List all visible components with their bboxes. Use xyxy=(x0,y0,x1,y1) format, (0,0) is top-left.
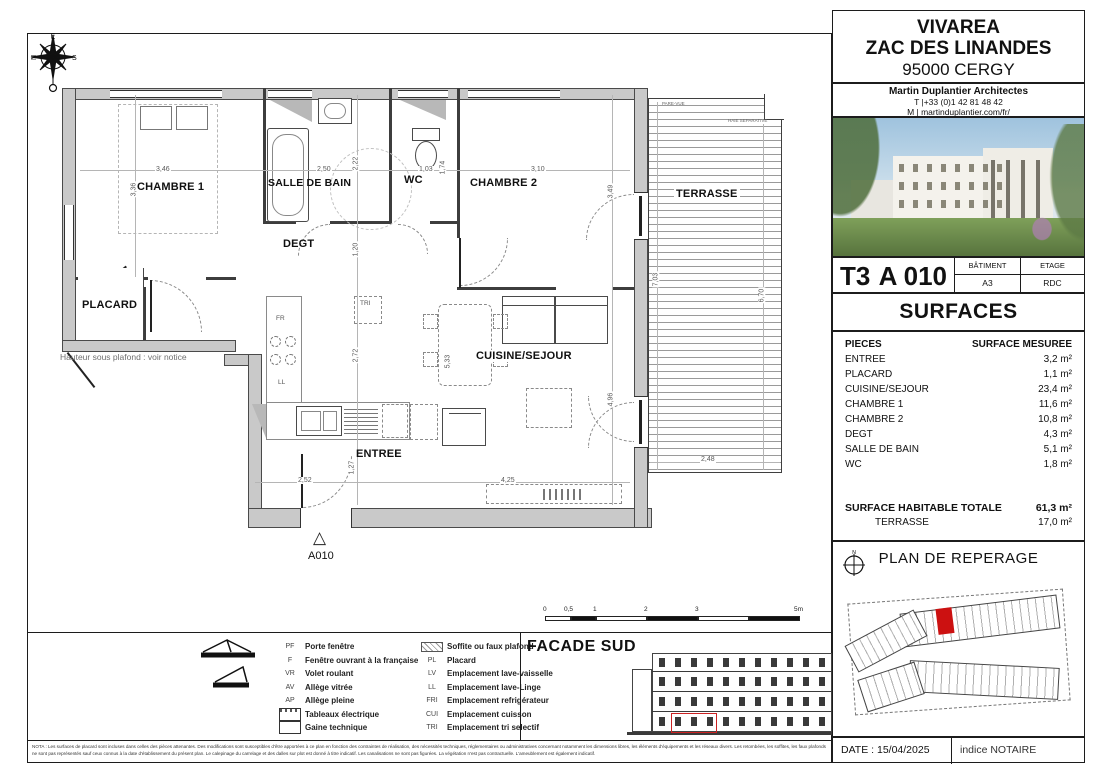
partition-wc-degt xyxy=(430,221,458,224)
room-terrasse: TERRASSE xyxy=(674,188,740,200)
dim-entree-h: 1,27 xyxy=(348,460,355,476)
dim-sdb-h: 2,22 xyxy=(352,156,359,172)
partition-chambre2-sejour-b xyxy=(612,287,634,290)
dim-terrasse-w: 2,48 xyxy=(700,456,716,463)
dim-wc-h: 1,74 xyxy=(439,160,446,176)
architect-box: Martin Duplantier Architectes T |+33 (0)… xyxy=(832,83,1085,117)
floor-plan: PARE-VUE HAIE SEPARATIVE xyxy=(0,0,832,632)
coffee-table xyxy=(526,388,572,428)
unit-row: T3 A 010 BÂTIMENT ETAGE A3 RDC xyxy=(832,257,1085,293)
unit-id-cell: T3 A 010 xyxy=(833,258,955,294)
legend-divider xyxy=(520,633,521,741)
dim-sdb-w: 2,50 xyxy=(316,166,332,173)
room-degt: DEGT xyxy=(283,238,314,250)
sink-drainer xyxy=(344,406,378,436)
technical-duct-icon xyxy=(279,721,301,734)
surfaces-table: PIECESSURFACE MESUREE ENTREE3,2 m² PLACA… xyxy=(832,331,1085,541)
floorplan-sheet: { "colors": {"accent_red": "#cc1111", "w… xyxy=(0,0,1094,770)
table-row: CUISINE/SEJOUR23,4 m² xyxy=(833,382,1084,397)
dim-table-h: 5,33 xyxy=(444,354,451,370)
window-sill-wc xyxy=(400,100,446,120)
building-photo xyxy=(832,117,1085,257)
dining-chair-2 xyxy=(423,352,438,367)
project-name: VIVAREA xyxy=(833,18,1084,39)
window-sill-sdb xyxy=(270,100,312,122)
legend-label: Gaine technique xyxy=(305,723,367,732)
legend-label: Emplacement refrigérateur xyxy=(447,696,549,705)
tri-box: TRI xyxy=(354,296,382,324)
reperage-box: N PLAN DE REPERAGE xyxy=(832,541,1085,737)
terrasse-decking xyxy=(648,98,782,473)
entree-door-opening xyxy=(300,508,352,528)
window-wc xyxy=(398,90,448,98)
window-left-wall xyxy=(64,205,74,260)
legend-label: Allège pleine xyxy=(305,696,354,705)
window-symbol-icon xyxy=(199,637,257,699)
dim-sejour-door-h: 4,96 xyxy=(607,392,614,408)
wall-placard-bottom xyxy=(62,340,236,352)
legend-label: Emplacement cuisson xyxy=(447,710,531,719)
dim-sejour-w: 4,25 xyxy=(500,477,516,484)
partition-wc-chambre2 xyxy=(457,88,460,238)
room-cuisine: CUISINE/SEJOUR xyxy=(476,350,572,362)
chambre2-terrasse-arc xyxy=(586,194,634,240)
room-sdb: SALLE DE BAIN xyxy=(268,177,351,189)
facade-title: FACADE SUD xyxy=(527,638,636,656)
bed-pillow-1 xyxy=(140,106,172,130)
legend-label: Porte fenêtre xyxy=(305,642,354,651)
table-row: WC1,8 m² xyxy=(833,457,1084,472)
dim-degt-h: 1,20 xyxy=(352,242,359,258)
window-sdb xyxy=(268,90,312,98)
indice-value: indice NOTAIRE xyxy=(952,738,1092,764)
legend-label: Volet roulant xyxy=(305,669,353,678)
chambre1-door-leaf xyxy=(150,280,152,332)
room-chambre2: CHAMBRE 2 xyxy=(470,177,537,189)
room-placard: PLACARD xyxy=(82,299,137,311)
nota-text: NOTA : Les surfaces de placard sont incl… xyxy=(27,741,832,760)
table-row: CHAMBRE 111,6 m² xyxy=(833,397,1084,412)
ceiling-note: Hauteur sous plafond : voir notice xyxy=(60,352,187,362)
radiator xyxy=(486,484,622,504)
architect-website[interactable]: M | martinduplantier.com/fr/ xyxy=(833,107,1084,117)
surfaces-title: SURFACES xyxy=(899,300,1017,324)
project-location: ZAC DES LINANDES xyxy=(833,39,1084,60)
wall-right xyxy=(634,88,648,528)
legend-label: Emplacement tri selectif xyxy=(447,723,539,732)
reperage-title: PLAN DE REPERAGE xyxy=(833,550,1084,567)
unit-number: A 010 xyxy=(879,261,947,292)
toilet-tank xyxy=(412,128,440,141)
site-plan xyxy=(839,578,1079,730)
table-row: SALLE DE BAIN5,1 m² xyxy=(833,442,1084,457)
partition-chambre1-sdb xyxy=(263,88,266,224)
etage-value: RDC xyxy=(1021,275,1084,294)
project-title-box: VIVAREA ZAC DES LINANDES 95000 CERGY xyxy=(832,10,1085,83)
wc-door-arc xyxy=(398,224,428,254)
bed-pillow-2 xyxy=(176,106,208,130)
architect-name: Martin Duplantier Architectes xyxy=(833,86,1084,97)
wall-kitchen-left xyxy=(248,354,262,512)
partition-chambre2-sejour-a xyxy=(457,287,556,290)
dim-wc-w: 1,03 xyxy=(418,166,434,173)
dim-cuisine-h: 2,72 xyxy=(352,348,359,364)
legend-label: Fenêtre ouvrant à la française xyxy=(305,656,418,665)
window-chambre1 xyxy=(110,90,222,98)
north-icon: N xyxy=(843,548,865,576)
surfaces-title-box: SURFACES xyxy=(832,293,1085,331)
sofa xyxy=(502,296,608,344)
legend-label: Tableaux électrique xyxy=(305,710,379,719)
room-chambre1: CHAMBRE 1 xyxy=(137,181,204,193)
table-row: ENTREE3,2 m² xyxy=(833,352,1084,367)
dim-chambre2-h: 3,49 xyxy=(607,184,614,200)
unit-type: T3 xyxy=(840,261,870,292)
dishwasher-box xyxy=(382,404,408,438)
date-row: DATE : 15/04/2025 indice NOTAIRE xyxy=(832,737,1085,763)
chambre2-door-leaf xyxy=(459,238,461,288)
legend-col1: PFPorte fenêtre FFenêtre ouvrant à la fr… xyxy=(279,640,418,735)
cooktop xyxy=(268,334,300,374)
chambre2-terrasse-door-panel xyxy=(639,196,642,236)
kitchen-sink xyxy=(296,406,342,436)
entrance-marker-label: A010 xyxy=(308,550,334,562)
chambre2-door-arc xyxy=(460,238,508,286)
terrasse-notch xyxy=(764,94,784,120)
dim-chambre2-w: 3,10 xyxy=(530,166,546,173)
dim-terrasse-h2: 6,70 xyxy=(758,288,765,304)
surfaces-header-row: PIECESSURFACE MESUREE xyxy=(833,337,1084,352)
architect-phone: T |+33 (0)1 42 81 48 42 xyxy=(833,97,1084,107)
project-city: 95000 CERGY xyxy=(833,60,1084,80)
legend-label: Allège vitrée xyxy=(305,683,353,692)
appliance-box xyxy=(410,404,438,440)
soffit-hatch-icon xyxy=(421,642,443,652)
legend-label: Placard xyxy=(447,656,476,665)
etage-header: ETAGE xyxy=(1021,258,1084,275)
electrical-panel-icon xyxy=(279,708,301,721)
legend-strip: PFPorte fenêtre FFenêtre ouvrant à la fr… xyxy=(27,632,832,740)
room-wc: WC xyxy=(404,174,423,186)
dim-chambre1-w: 3,46 xyxy=(155,166,171,173)
legend-label: Emplacement lave-Linge xyxy=(447,683,541,692)
table-row: CHAMBRE 210,8 m² xyxy=(833,412,1084,427)
dining-chair-3 xyxy=(493,314,508,329)
date-value: DATE : 15/04/2025 xyxy=(833,738,952,764)
armchair xyxy=(442,408,486,446)
batiment-header: BÂTIMENT xyxy=(955,258,1021,275)
dining-chair-1 xyxy=(423,314,438,329)
sdb-clearance-circle xyxy=(330,148,412,230)
sejour-terrasse-door-panel xyxy=(639,400,642,444)
nota-strip: NOTA : Les surfaces de placard sont incl… xyxy=(27,740,832,763)
window-chambre2 xyxy=(468,90,560,98)
scale-bar: 0 0,5 1 2 3 5m xyxy=(540,606,810,630)
surfaces-total-row: SURFACE HABITABLE TOTALE61,3 m² xyxy=(833,500,1084,515)
dining-table xyxy=(438,304,492,386)
haie-separative-label: HAIE SEPARATIVE xyxy=(728,118,767,123)
facade-elevation-drawing xyxy=(627,641,859,737)
chambre1-door-arc xyxy=(150,280,202,332)
legend-label: Emplacement lave-vaisselle xyxy=(447,669,553,678)
bathtub xyxy=(267,128,309,222)
partition-chambre1-degt-b xyxy=(206,277,236,280)
entrance-marker-glyph: △ xyxy=(313,528,326,548)
pare-vue-label: PARE-VUE xyxy=(662,101,685,106)
bathroom-sink xyxy=(318,98,352,124)
dim-terrasse-h1: 7,03 xyxy=(652,272,659,288)
room-entree: ENTREE xyxy=(356,448,402,460)
table-row: PLACARD1,1 m² xyxy=(833,367,1084,382)
facade-unit-highlight xyxy=(671,713,717,733)
surfaces-terrasse-row: TERRASSE17,0 m² xyxy=(833,515,1084,530)
laundry-label: LL xyxy=(278,379,285,386)
table-row: DEGT4,3 m² xyxy=(833,427,1084,442)
dim-entree-w: 2,52 xyxy=(297,477,313,484)
site-unit-highlight xyxy=(935,607,954,635)
fridge-label: FR xyxy=(276,315,285,322)
batiment-value: A3 xyxy=(955,275,1021,294)
